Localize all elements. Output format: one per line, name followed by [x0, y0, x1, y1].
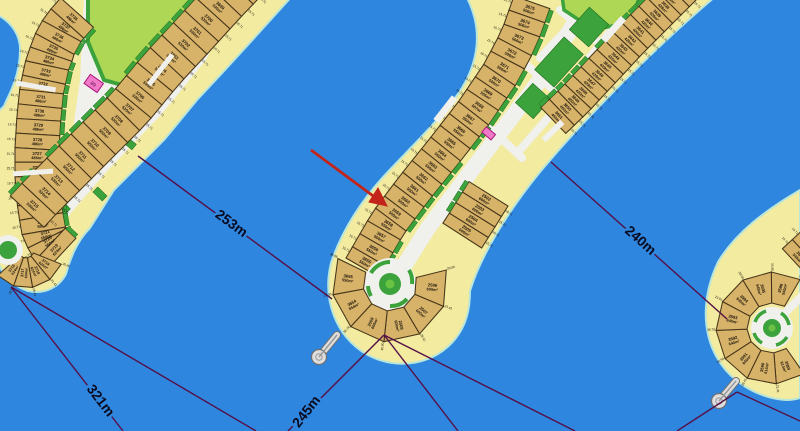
svg-text:35.90: 35.90 [380, 342, 385, 351]
svg-text:486m²: 486m² [33, 112, 45, 118]
svg-text:15.71: 15.71 [10, 93, 19, 98]
svg-text:486m²: 486m² [31, 155, 43, 160]
svg-text:36.78: 36.78 [707, 328, 715, 332]
svg-text:15.71: 15.71 [7, 167, 15, 171]
svg-text:21.41: 21.41 [775, 385, 780, 393]
svg-text:486m²: 486m² [32, 141, 44, 147]
svg-text:600m²: 600m² [426, 286, 438, 292]
svg-text:15.71: 15.71 [6, 152, 14, 156]
svg-text:15.71: 15.71 [8, 122, 16, 126]
svg-text:15.71: 15.71 [9, 107, 18, 112]
svg-text:486m²: 486m² [32, 126, 44, 132]
svg-text:15.71: 15.71 [7, 137, 15, 141]
svg-text:15.71: 15.71 [7, 181, 15, 185]
svg-text:33.80: 33.80 [770, 263, 774, 271]
